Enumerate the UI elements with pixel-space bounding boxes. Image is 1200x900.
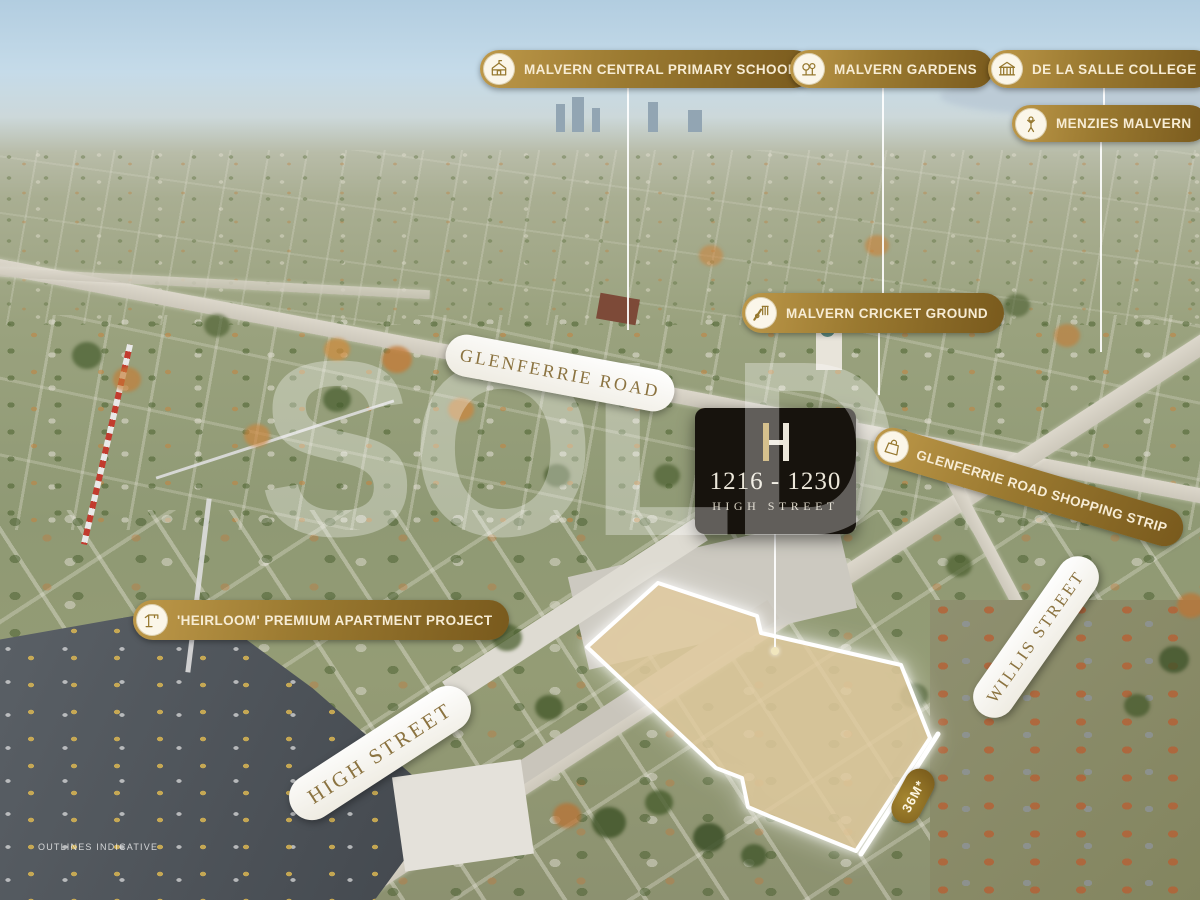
leader-line-menzies <box>1100 142 1102 352</box>
cricket-icon <box>745 297 777 329</box>
badge-label: MALVERN CRICKET GROUND <box>786 306 988 321</box>
shopping-bag-icon <box>873 427 913 467</box>
badge-label: MALVERN CENTRAL PRIMARY SCHOOL <box>524 62 797 77</box>
crane-icon <box>136 604 168 636</box>
street-label: GLENFERRIE ROAD <box>458 344 661 402</box>
street-ribbon-glenferrie: GLENFERRIE ROAD <box>442 331 678 415</box>
apartment-rooftop <box>392 759 534 871</box>
city-skyline <box>592 108 600 132</box>
property-anchor-dot <box>771 647 779 655</box>
badge-primary-school: MALVERN CENTRAL PRIMARY SCHOOL <box>480 50 813 88</box>
leader-line-gardens <box>882 88 884 293</box>
aerial-site-map: 36M* 1216 - 1230 HIGH STREET SOLD MALVER… <box>0 0 1200 900</box>
garden-tree-icon <box>793 53 825 85</box>
property-address-card: 1216 - 1230 HIGH STREET <box>695 408 856 534</box>
crane-boom <box>156 399 395 479</box>
leader-line-school <box>627 88 629 330</box>
badge-heirloom-project: 'HEIRLOOM' PREMIUM APARTMENT PROJECT <box>133 600 509 640</box>
leader-line-property <box>774 534 776 650</box>
tiled-roof-district <box>930 600 1200 900</box>
badge-label: DE LA SALLE COLLEGE <box>1032 62 1197 77</box>
outlines-disclaimer: OUTLINES INDICATIVE <box>38 842 158 852</box>
college-icon <box>991 53 1023 85</box>
badge-malvern-gardens: MALVERN GARDENS <box>790 50 993 88</box>
address-range: 1216 - 1230 <box>710 469 842 494</box>
city-skyline <box>688 110 702 132</box>
city-skyline <box>648 102 658 132</box>
badge-de-la-salle: DE LA SALLE COLLEGE <box>988 50 1200 88</box>
school-icon <box>483 53 515 85</box>
badge-menzies: MENZIES MALVERN <box>1012 105 1200 142</box>
badge-label: MENZIES MALVERN <box>1056 116 1192 131</box>
leader-line-college <box>1103 88 1105 105</box>
church-roof <box>596 293 640 326</box>
badge-label: MALVERN GARDENS <box>834 62 977 77</box>
city-skyline <box>556 104 565 132</box>
crane-mast <box>81 344 133 545</box>
frontage-label: 36M* <box>898 777 927 814</box>
badge-cricket-ground: MALVERN CRICKET GROUND <box>742 293 1004 333</box>
h-monogram <box>757 421 795 463</box>
badge-label: 'HEIRLOOM' PREMIUM APARTMENT PROJECT <box>177 613 493 628</box>
person-icon <box>1015 108 1047 140</box>
leader-line-cricket <box>878 333 880 395</box>
address-street: HIGH STREET <box>712 500 839 512</box>
city-skyline <box>572 97 584 132</box>
